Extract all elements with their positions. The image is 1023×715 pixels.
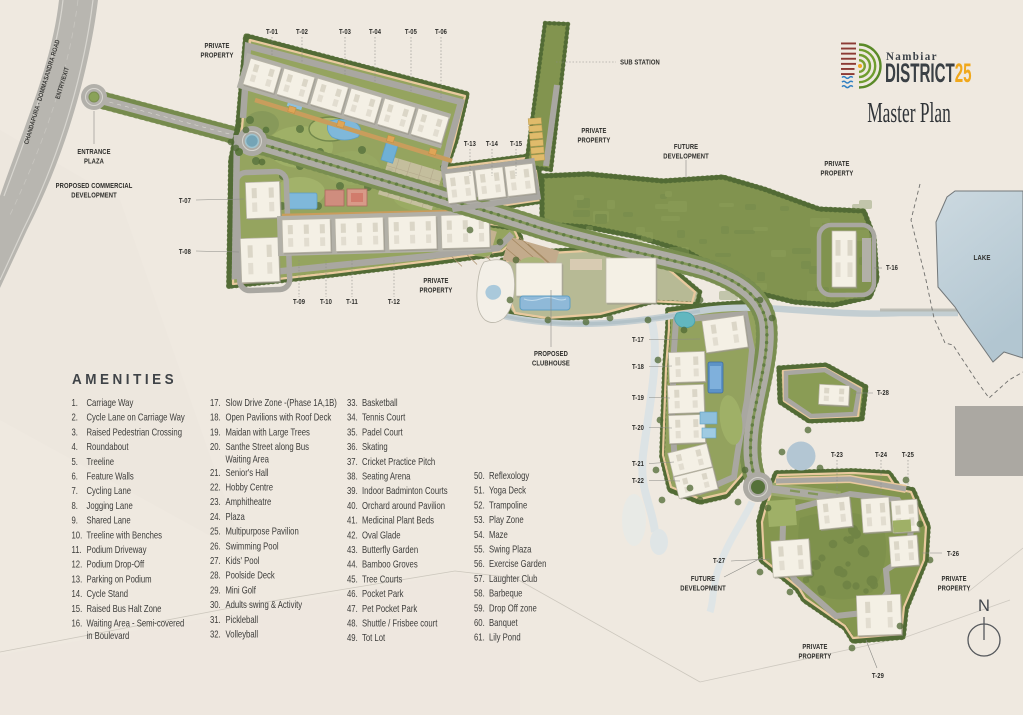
svg-text:Yoga Deck: Yoga Deck (489, 485, 526, 496)
svg-text:T-19: T-19 (632, 395, 644, 403)
svg-text:PROPERTY: PROPERTY (201, 52, 234, 60)
svg-text:7.: 7. (72, 485, 78, 496)
svg-text:T-16: T-16 (886, 265, 898, 273)
svg-text:15.: 15. (72, 603, 83, 614)
svg-text:PRIVATE: PRIVATE (423, 278, 449, 286)
svg-text:in Boulevard: in Boulevard (87, 630, 130, 641)
svg-text:DEVELOPMENT: DEVELOPMENT (663, 153, 708, 161)
svg-text:39.: 39. (347, 485, 358, 496)
svg-text:Mini Golf: Mini Golf (225, 584, 256, 595)
svg-text:Laughter Club: Laughter Club (489, 573, 537, 584)
svg-text:PRIVATE: PRIVATE (802, 644, 828, 652)
svg-text:Amphitheatre: Amphitheatre (225, 496, 271, 507)
svg-text:1.: 1. (72, 397, 78, 408)
svg-text:PLAZA: PLAZA (84, 158, 104, 166)
svg-text:Volleyball: Volleyball (225, 629, 258, 640)
svg-text:Bamboo Groves: Bamboo Groves (362, 559, 418, 570)
svg-text:Kids' Pool: Kids' Pool (225, 555, 259, 566)
svg-text:Tree Courts: Tree Courts (362, 573, 403, 584)
svg-text:T-27: T-27 (713, 558, 725, 566)
svg-text:T-25: T-25 (902, 452, 914, 460)
svg-text:35.: 35. (347, 426, 358, 437)
svg-text:19.: 19. (210, 426, 221, 437)
svg-text:22.: 22. (210, 482, 221, 493)
svg-text:4.: 4. (72, 441, 78, 452)
svg-text:27.: 27. (210, 555, 221, 566)
svg-text:Lily Pond: Lily Pond (489, 632, 521, 643)
svg-text:T-24: T-24 (875, 452, 887, 460)
svg-text:Exercise Garden: Exercise Garden (489, 558, 546, 569)
svg-text:Tot Lot: Tot Lot (362, 632, 386, 643)
svg-text:PROPERTY: PROPERTY (821, 170, 854, 178)
svg-text:LAKE: LAKE (974, 255, 991, 263)
svg-text:PRIVATE: PRIVATE (204, 43, 230, 51)
svg-text:23.: 23. (210, 496, 221, 507)
svg-text:T-18: T-18 (632, 364, 644, 372)
svg-text:Drop Off zone: Drop Off zone (489, 602, 537, 613)
svg-text:Orchard around Pavilion: Orchard around Pavilion (362, 500, 445, 511)
svg-text:59.: 59. (474, 602, 485, 613)
svg-text:Butterfly Garden: Butterfly Garden (362, 544, 418, 555)
svg-text:PROPERTY: PROPERTY (578, 137, 611, 145)
svg-text:Raised Pedestrian Crossing: Raised Pedestrian Crossing (87, 426, 183, 437)
svg-text:T-21: T-21 (632, 461, 644, 469)
svg-text:Master Plan: Master Plan (867, 98, 951, 130)
svg-text:T-26: T-26 (947, 551, 959, 559)
svg-text:30.: 30. (210, 599, 221, 610)
svg-text:14.: 14. (72, 588, 83, 599)
svg-text:50.: 50. (474, 470, 485, 481)
svg-text:2.: 2. (72, 412, 78, 423)
svg-text:Oval Glade: Oval Glade (362, 529, 401, 540)
svg-text:Treeline: Treeline (87, 456, 115, 467)
svg-text:PROPERTY: PROPERTY (938, 585, 971, 593)
svg-text:46.: 46. (347, 588, 358, 599)
svg-text:Cycle Lane on Carriage Way: Cycle Lane on Carriage Way (87, 412, 186, 423)
svg-text:Play Zone: Play Zone (489, 514, 524, 525)
svg-text:18.: 18. (210, 412, 221, 423)
svg-text:DEVELOPMENT: DEVELOPMENT (71, 192, 116, 200)
svg-text:6.: 6. (72, 471, 78, 482)
svg-text:32.: 32. (210, 629, 221, 640)
svg-text:Multipurpose Pavilion: Multipurpose Pavilion (225, 526, 298, 537)
svg-text:T-17: T-17 (632, 337, 644, 345)
svg-text:T-14: T-14 (486, 141, 498, 149)
svg-text:10.: 10. (72, 529, 83, 540)
svg-text:DISTRICT25: DISTRICT25 (885, 57, 972, 88)
svg-text:T-07: T-07 (179, 198, 191, 206)
svg-text:17.: 17. (210, 397, 221, 408)
svg-text:Maidan with Large Trees: Maidan with Large Trees (225, 426, 310, 437)
svg-text:T-01: T-01 (266, 29, 278, 37)
svg-text:Waiting Area - Semi-covered: Waiting Area - Semi-covered (87, 618, 185, 629)
svg-text:T-15: T-15 (510, 141, 522, 149)
svg-text:49.: 49. (347, 632, 358, 643)
svg-text:Plaza: Plaza (225, 511, 244, 522)
svg-text:PRIVATE: PRIVATE (581, 128, 607, 136)
svg-text:PROPOSED COMMERCIAL: PROPOSED COMMERCIAL (56, 183, 133, 191)
svg-text:52.: 52. (474, 499, 485, 510)
svg-text:Pet Pocket Park: Pet Pocket Park (362, 603, 418, 614)
svg-text:Carriage Way: Carriage Way (87, 397, 134, 408)
svg-text:21.: 21. (210, 467, 221, 478)
svg-text:Trampoline: Trampoline (489, 499, 527, 510)
svg-text:28.: 28. (210, 570, 221, 581)
svg-text:Barbeque: Barbeque (489, 588, 522, 599)
svg-text:Pickleball: Pickleball (225, 614, 258, 625)
svg-text:PROPERTY: PROPERTY (420, 287, 453, 295)
svg-text:Santhe Street along Bus: Santhe Street along Bus (225, 441, 309, 452)
svg-text:43.: 43. (347, 544, 358, 555)
svg-text:Podium Driveway: Podium Driveway (87, 544, 147, 555)
svg-text:16.: 16. (72, 618, 83, 629)
svg-text:Raised Bus Halt Zone: Raised Bus Halt Zone (87, 603, 162, 614)
svg-text:T-22: T-22 (632, 478, 644, 486)
svg-text:T-13: T-13 (464, 141, 476, 149)
svg-text:Poolside Deck: Poolside Deck (225, 570, 275, 581)
svg-text:53.: 53. (474, 514, 485, 525)
svg-text:DEVELOPMENT: DEVELOPMENT (680, 585, 725, 593)
svg-text:47.: 47. (347, 603, 358, 614)
svg-text:29.: 29. (210, 584, 221, 595)
svg-text:5.: 5. (72, 456, 78, 467)
svg-text:Cycling Lane: Cycling Lane (87, 485, 132, 496)
svg-text:T-10: T-10 (320, 299, 332, 307)
svg-text:44.: 44. (347, 559, 358, 570)
svg-text:T-12: T-12 (388, 299, 400, 307)
svg-text:Medicinal Plant Beds: Medicinal Plant Beds (362, 515, 434, 526)
svg-text:31.: 31. (210, 614, 221, 625)
svg-text:T-02: T-02 (296, 29, 308, 37)
svg-text:Basketball: Basketball (362, 397, 398, 408)
svg-text:38.: 38. (347, 471, 358, 482)
svg-text:60.: 60. (474, 617, 485, 628)
svg-text:8.: 8. (72, 500, 78, 511)
svg-text:T-04: T-04 (369, 29, 381, 37)
svg-text:T-03: T-03 (339, 29, 351, 37)
svg-text:Shared Lane: Shared Lane (87, 515, 131, 526)
svg-text:45.: 45. (347, 573, 358, 584)
svg-text:FUTURE: FUTURE (691, 576, 716, 584)
svg-text:Indoor Badminton Courts: Indoor Badminton Courts (362, 485, 448, 496)
svg-text:T-09: T-09 (293, 299, 305, 307)
svg-text:Maze: Maze (489, 529, 508, 540)
svg-text:Banquet: Banquet (489, 617, 518, 628)
svg-text:T-23: T-23 (831, 452, 843, 460)
svg-text:Skating: Skating (362, 441, 388, 452)
svg-text:N: N (978, 597, 990, 615)
svg-text:13.: 13. (72, 573, 83, 584)
svg-text:FUTURE: FUTURE (674, 144, 699, 152)
svg-text:37.: 37. (347, 456, 358, 467)
svg-text:9.: 9. (72, 515, 78, 526)
svg-text:Jogging Lane: Jogging Lane (87, 500, 133, 511)
svg-text:54.: 54. (474, 529, 485, 540)
svg-text:41.: 41. (347, 515, 358, 526)
svg-text:26.: 26. (210, 540, 221, 551)
svg-text:Seating Arena: Seating Arena (362, 471, 410, 482)
svg-text:T-29: T-29 (872, 673, 884, 681)
svg-text:Waiting Area: Waiting Area (225, 454, 268, 465)
svg-text:20.: 20. (210, 441, 221, 452)
svg-text:T-06: T-06 (435, 29, 447, 37)
svg-text:24.: 24. (210, 511, 221, 522)
svg-text:T-05: T-05 (405, 29, 417, 37)
svg-text:PROPERTY: PROPERTY (799, 653, 832, 661)
svg-text:T-28: T-28 (877, 390, 889, 398)
svg-text:42.: 42. (347, 529, 358, 540)
svg-text:Hobby Centre: Hobby Centre (225, 482, 273, 493)
svg-text:Open Pavilions with Roof Deck: Open Pavilions with Roof Deck (225, 412, 331, 423)
svg-text:Slow Drive Zone -(Phase 1A,1B): Slow Drive Zone -(Phase 1A,1B) (225, 397, 336, 408)
svg-text:40.: 40. (347, 500, 358, 511)
svg-text:Swing Plaza: Swing Plaza (489, 544, 531, 555)
svg-text:T-20: T-20 (632, 425, 644, 433)
svg-text:AMENITIES: AMENITIES (72, 371, 177, 388)
svg-text:Cycle Stand: Cycle Stand (87, 588, 129, 599)
svg-text:Shuttle / Frisbee court: Shuttle / Frisbee court (362, 618, 438, 629)
svg-text:58.: 58. (474, 588, 485, 599)
svg-text:SUB STATION: SUB STATION (620, 59, 660, 67)
svg-text:Senior's Hall: Senior's Hall (225, 467, 268, 478)
svg-text:56.: 56. (474, 558, 485, 569)
svg-text:Reflexology: Reflexology (489, 470, 530, 481)
svg-text:Cricket Practice Pitch: Cricket Practice Pitch (362, 456, 435, 467)
svg-text:Treeline with Benches: Treeline with Benches (87, 529, 163, 540)
svg-text:Parking on Podium: Parking on Podium (87, 573, 152, 584)
svg-text:11.: 11. (72, 544, 82, 555)
svg-text:Podium Drop-Off: Podium Drop-Off (87, 559, 145, 570)
svg-text:Adults swing & Activity: Adults swing & Activity (225, 599, 302, 610)
svg-text:57.: 57. (474, 573, 485, 584)
svg-text:3.: 3. (72, 426, 78, 437)
svg-text:ENTRANCE: ENTRANCE (77, 149, 111, 157)
svg-text:55.: 55. (474, 544, 485, 555)
svg-text:CLUBHOUSE: CLUBHOUSE (532, 360, 570, 368)
svg-text:Tennis Court: Tennis Court (362, 412, 406, 423)
svg-text:Feature Walls: Feature Walls (87, 471, 135, 482)
svg-text:T-08: T-08 (179, 249, 191, 257)
svg-text:61.: 61. (474, 632, 485, 643)
svg-text:PROPOSED: PROPOSED (534, 351, 568, 359)
svg-text:33.: 33. (347, 397, 358, 408)
svg-text:51.: 51. (474, 485, 485, 496)
svg-text:PRIVATE: PRIVATE (941, 576, 967, 584)
svg-text:Padel Court: Padel Court (362, 426, 403, 437)
svg-text:34.: 34. (347, 412, 358, 423)
svg-text:Pocket Park: Pocket Park (362, 588, 404, 599)
svg-text:T-11: T-11 (346, 299, 358, 307)
svg-text:Swimming Pool: Swimming Pool (225, 540, 278, 551)
svg-text:48.: 48. (347, 618, 358, 629)
svg-text:Roundabout: Roundabout (87, 441, 129, 452)
svg-text:PRIVATE: PRIVATE (824, 161, 850, 169)
svg-text:25.: 25. (210, 526, 221, 537)
svg-text:12.: 12. (72, 559, 83, 570)
svg-text:36.: 36. (347, 441, 358, 452)
